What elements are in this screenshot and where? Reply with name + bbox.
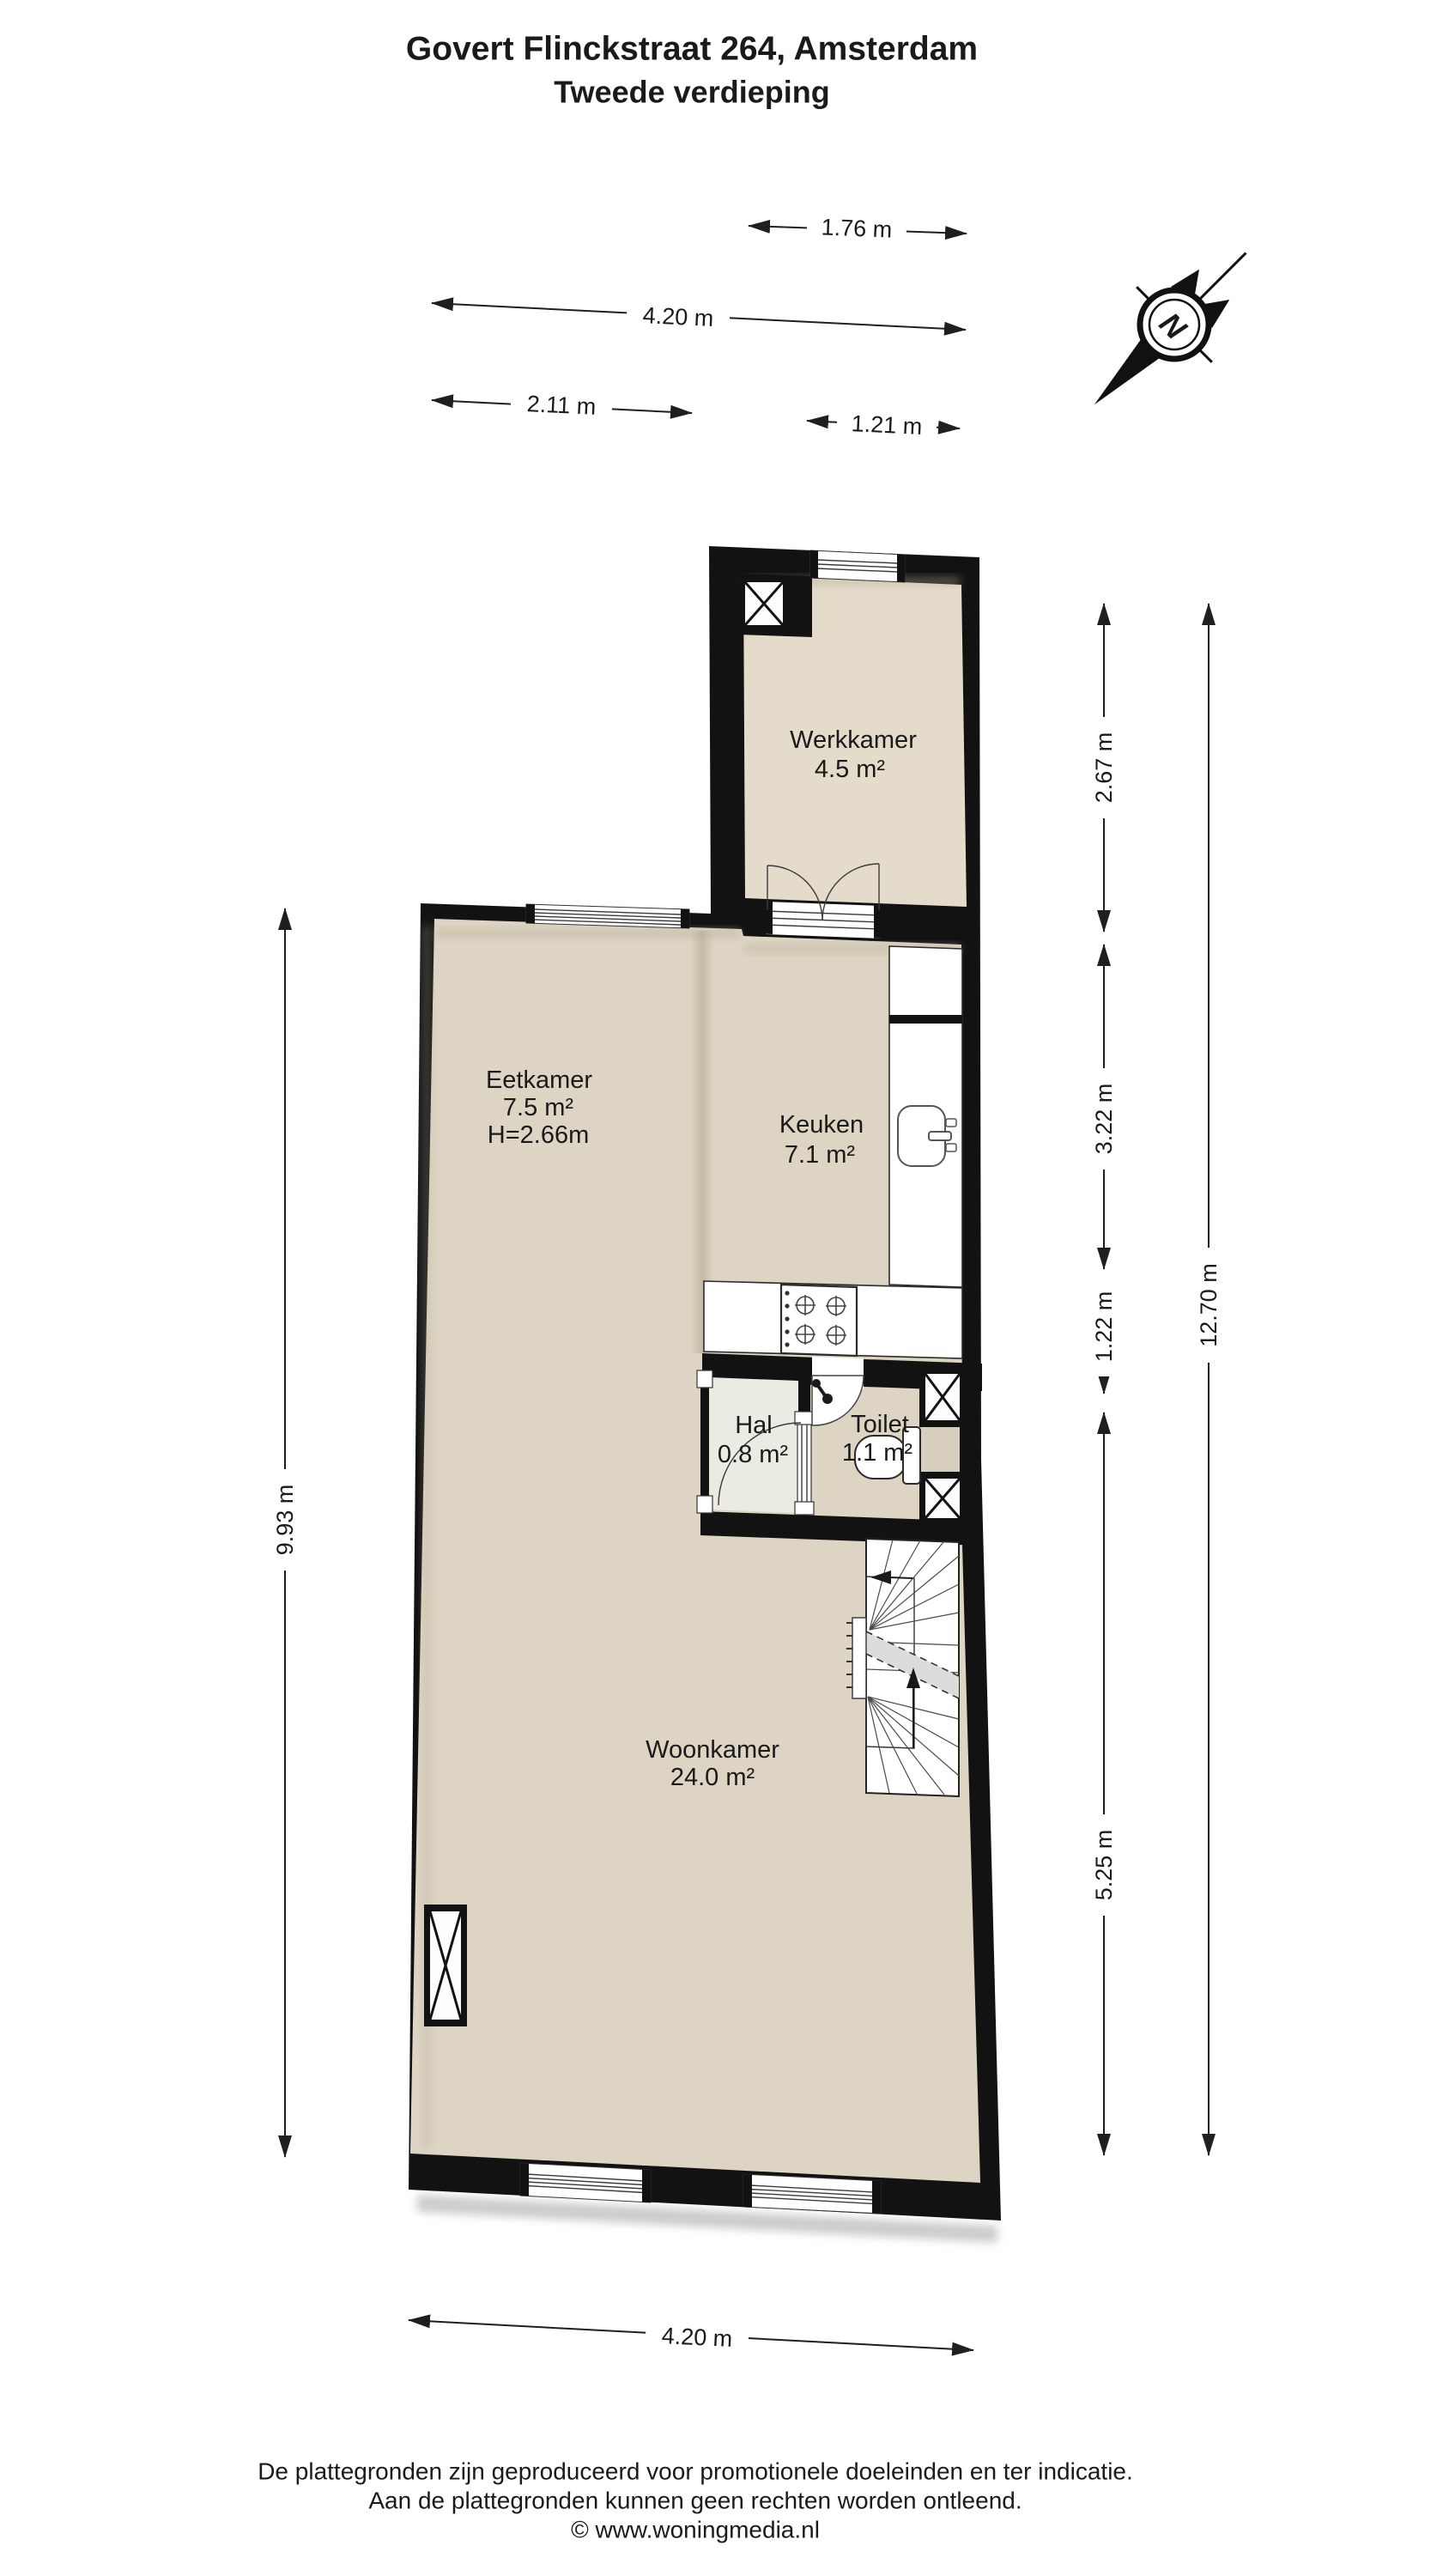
toilet-niche — [919, 1427, 960, 1472]
kitchen-faucet-knob-1 — [946, 1119, 956, 1127]
woonkamer-label: Woonkamer — [646, 1736, 779, 1764]
footer-line1: De plattegronden zijn geproduceerd voor … — [258, 2458, 1133, 2485]
dim-text-420-top: 4.20 m — [642, 302, 714, 331]
keuken-area: 7.1 m² — [785, 1141, 856, 1169]
stairs-railing — [852, 1618, 866, 1698]
window-woonkamer-bottom-right — [743, 2174, 881, 2214]
dim-text-525: 5.25 m — [1091, 1830, 1117, 1901]
kitchen-stove — [781, 1285, 857, 1356]
kitchen-faucet — [929, 1132, 951, 1140]
eetkamer-height: H=2.66m — [488, 1121, 589, 1149]
window-woonkamer-bottom-left — [520, 2163, 651, 2202]
woonkamer-area: 24.0 m² — [670, 1764, 755, 1791]
wall-hal-left — [700, 1372, 709, 1511]
hal-area: 0.8 m² — [718, 1441, 789, 1468]
hal-toilet-jamb-bottom — [795, 1502, 814, 1515]
kitchen-faucet-knob-2 — [946, 1144, 956, 1151]
keuken-label: Keuken — [779, 1111, 864, 1139]
hal-label: Hal — [735, 1412, 773, 1439]
floorplan-canvas: Govert Flinckstraat 264, Amsterdam Tweed… — [0, 0, 1449, 2576]
page-subtitle: Tweede verdieping — [554, 75, 829, 110]
werkkamer-label: Werkkamer — [790, 726, 917, 754]
dim-text-1270: 12.70 m — [1196, 1263, 1222, 1347]
page-title: Govert Flinckstraat 264, Amsterdam — [406, 31, 978, 68]
eetkamer-area: 7.5 m² — [503, 1094, 574, 1121]
dim-text-267: 2.67 m — [1091, 732, 1117, 804]
kitchen-counter-separator — [889, 1015, 962, 1024]
footer-line2: Aan de plattegronden kunnen geen rechten… — [368, 2488, 1022, 2514]
dim-text-322: 3.22 m — [1091, 1084, 1117, 1155]
eetkamer-label: Eetkamer — [486, 1066, 592, 1094]
floorplan-page: Govert Flinckstraat 264, Amsterdam Tweed… — [0, 0, 1449, 2576]
toilet-label: Toilet — [851, 1411, 909, 1438]
window-werkkamer-top — [810, 550, 905, 582]
dim-text-420-bottom: 4.20 m — [661, 2323, 733, 2352]
double-door-cap-left — [764, 901, 773, 934]
footer: De plattegronden zijn geproduceerd voor … — [258, 2458, 1133, 2543]
werkkamer-area: 4.5 m² — [815, 756, 886, 783]
toilet-area: 1.1 m² — [842, 1439, 913, 1467]
toilet-door-handle-knob — [822, 1394, 833, 1404]
dim-text-122: 1.22 m — [1091, 1291, 1117, 1363]
window-woonkamer-left — [424, 1905, 467, 2026]
hal-left-jamb-bottom — [697, 1496, 712, 1513]
hal-left-jamb-top — [697, 1370, 712, 1388]
dim-text-176: 1.76 m — [821, 214, 893, 242]
footer-line3: © www.woningmedia.nl — [571, 2517, 820, 2543]
compass: N — [1057, 216, 1283, 442]
dim-text-211: 2.11 m — [526, 391, 597, 420]
dim-text-993: 9.93 m — [272, 1485, 298, 1556]
dim-text-121: 1.21 m — [851, 410, 923, 440]
hal-toilet-door — [797, 1424, 811, 1504]
double-door-cap-right — [874, 905, 882, 939]
floor-plan: Werkkamer 4.5 m² Eetkamer 7.5 m² H=2.66m… — [409, 546, 1001, 2243]
